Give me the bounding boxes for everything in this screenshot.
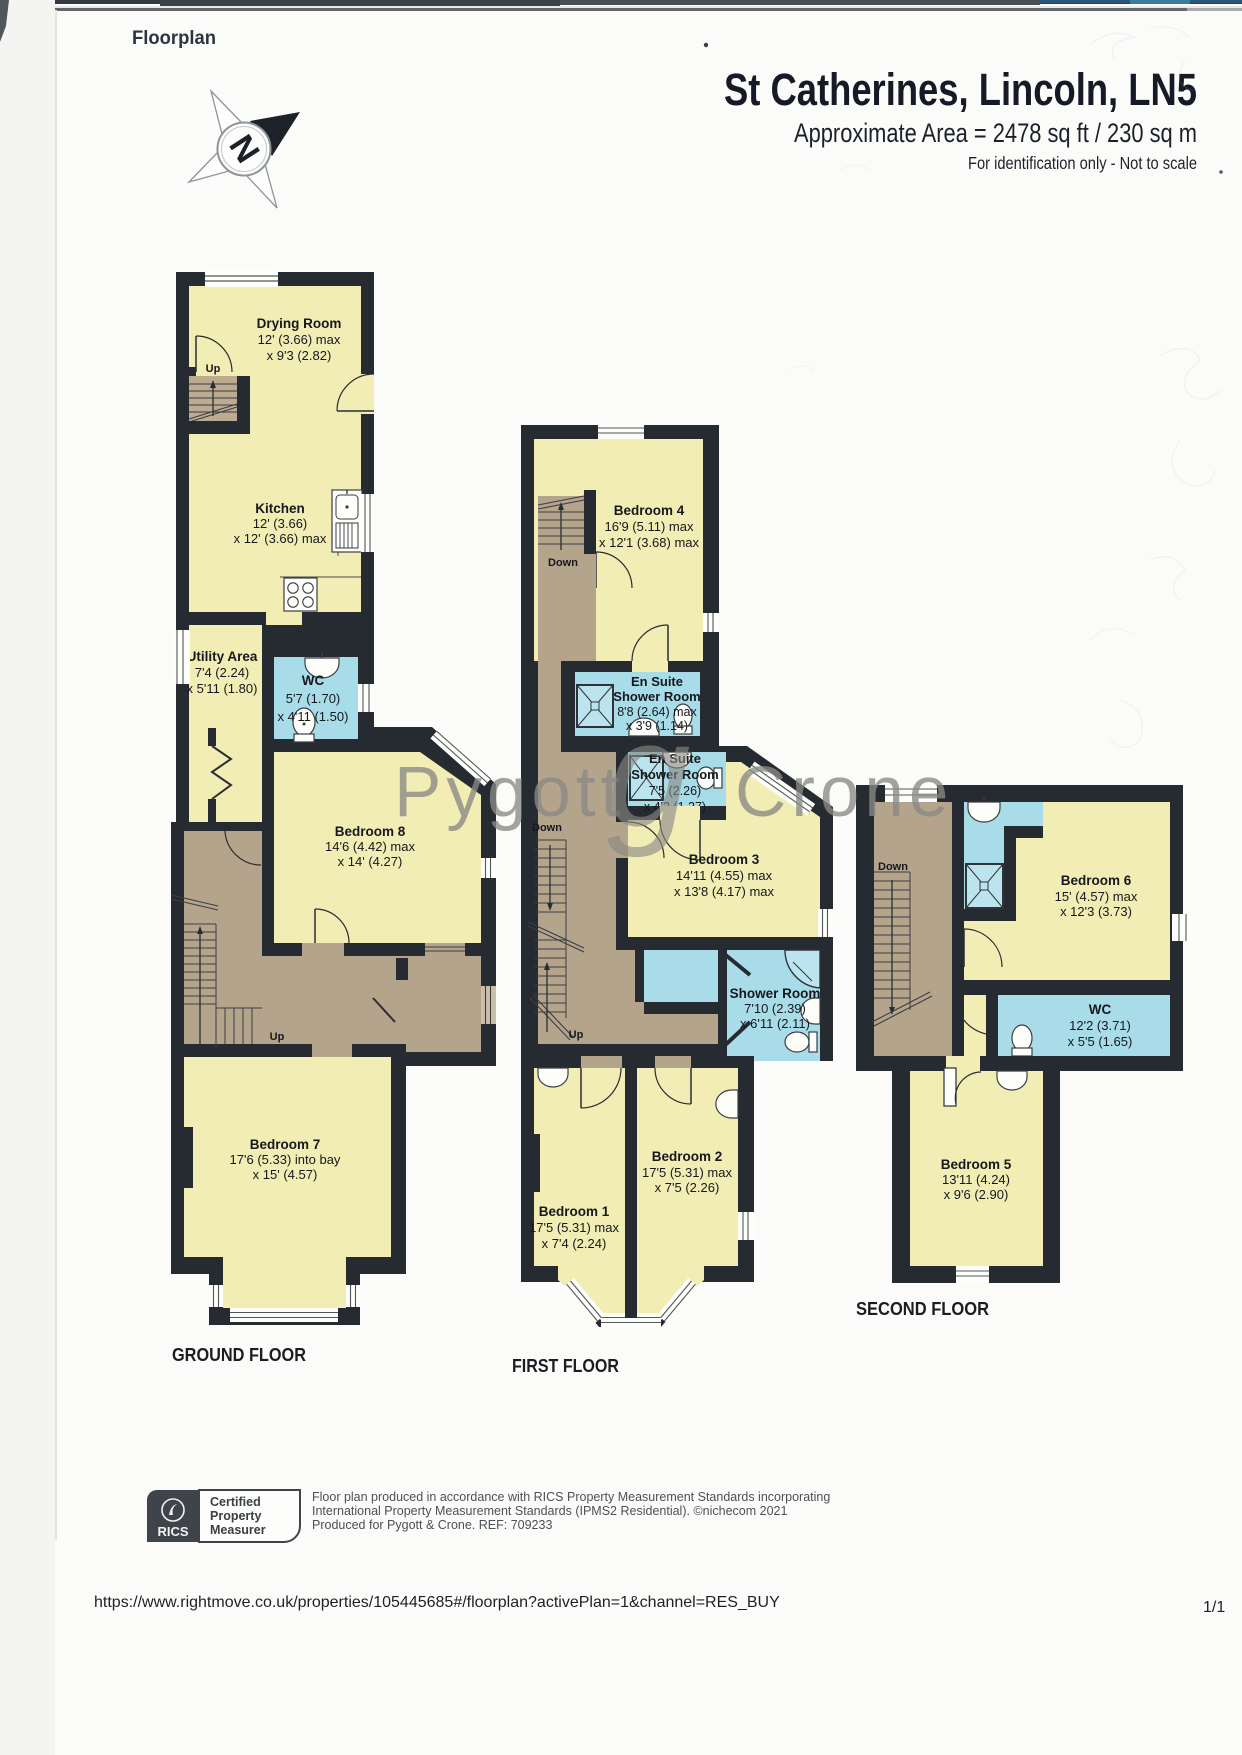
svg-text:Bedroom 6: Bedroom 6 [1061,873,1132,888]
svg-text:13'11 (4.24): 13'11 (4.24) [942,1172,1010,1187]
svg-text:Crone: Crone [735,753,953,832]
svg-text:Floor plan produced in accorda: Floor plan produced in accordance with R… [312,1490,830,1504]
svg-text:16'9 (5.11) max: 16'9 (5.11) max [605,519,694,534]
svg-text:SECOND FLOOR: SECOND FLOOR [856,1298,989,1319]
svg-text:Bedroom 1: Bedroom 1 [539,1204,610,1219]
svg-text:x 13'8 (4.17) max: x 13'8 (4.17) max [674,884,775,899]
svg-text:12'2 (3.71): 12'2 (3.71) [1069,1018,1131,1033]
svg-text:x 9'6 (2.90): x 9'6 (2.90) [944,1187,1009,1202]
svg-text:WC: WC [1089,1002,1112,1017]
svg-text:x 15' (4.57): x 15' (4.57) [253,1167,318,1182]
svg-text:FIRST FLOOR: FIRST FLOOR [512,1355,619,1376]
svg-text:Down: Down [878,861,908,873]
svg-text:Bedroom 2: Bedroom 2 [652,1149,723,1164]
svg-text:x 12'3 (3.73): x 12'3 (3.73) [1060,904,1132,919]
svg-text:x 12'1 (3.68) max: x 12'1 (3.68) max [599,535,700,550]
svg-text:St Catherines, Lincoln, LN5: St Catherines, Lincoln, LN5 [724,64,1197,115]
svg-text:x 7'4 (2.24): x 7'4 (2.24) [542,1236,607,1251]
svg-text:Bedroom 7: Bedroom 7 [250,1137,321,1152]
svg-text:17'6 (5.33) into bay: 17'6 (5.33) into bay [230,1152,341,1167]
svg-text:Bedroom 4: Bedroom 4 [614,503,685,518]
svg-text:Bedroom 3: Bedroom 3 [689,852,760,867]
svg-text:x 5'11 (1.80): x 5'11 (1.80) [187,681,258,696]
svg-text:Utility Area: Utility Area [187,649,258,664]
svg-text:7'4 (2.24): 7'4 (2.24) [195,665,250,680]
svg-text:17'5 (5.31) max: 17'5 (5.31) max [529,1220,619,1235]
svg-text:14'6 (4.42) max: 14'6 (4.42) max [325,839,415,854]
svg-text:Approximate Area = 2478 sq ft: Approximate Area = 2478 sq ft / 230 sq m [794,118,1197,148]
svg-text:GROUND FLOOR: GROUND FLOOR [172,1344,306,1365]
svg-text:Certified: Certified [210,1495,261,1509]
svg-text:RICS: RICS [157,1524,188,1539]
svg-text:Up: Up [270,1031,285,1043]
svg-text:x 9'3 (2.82): x 9'3 (2.82) [267,348,332,363]
svg-text:Shower Room: Shower Room [730,986,821,1001]
svg-text:12' (3.66): 12' (3.66) [253,516,308,531]
svg-text:x 7'5 (2.26): x 7'5 (2.26) [655,1180,720,1195]
svg-text:Floorplan: Floorplan [132,28,216,49]
svg-text:En Suite: En Suite [631,674,683,689]
svg-text:17'5 (5.31) max: 17'5 (5.31) max [642,1165,732,1180]
svg-text:x 6'11 (2.11): x 6'11 (2.11) [740,1016,810,1031]
svg-text:Drying Room: Drying Room [257,316,342,331]
svg-text:Kitchen: Kitchen [255,501,305,516]
svg-text:5'7 (1.70): 5'7 (1.70) [286,691,341,706]
svg-text:Up: Up [569,1029,584,1041]
svg-text:x 12' (3.66) max: x 12' (3.66) max [234,531,327,546]
svg-text:15' (4.57) max: 15' (4.57) max [1055,889,1138,904]
svg-text:x 14' (4.27): x 14' (4.27) [338,854,403,869]
svg-text:Produced for Pygott & Crone.: Produced for Pygott & Crone. REF: 709233 [312,1518,552,1532]
svg-text:Property: Property [210,1509,261,1523]
svg-text:12' (3.66) max: 12' (3.66) max [258,332,341,347]
svg-text:https://www.rightmove.co.uk/pr: https://www.rightmove.co.uk/properties/1… [94,1594,780,1611]
svg-text:Up: Up [206,363,221,375]
svg-text:7'10 (2.39): 7'10 (2.39) [744,1001,806,1016]
svg-text:g: g [607,690,690,858]
svg-text:1/1: 1/1 [1203,1599,1225,1616]
svg-text:x 4'11 (1.50): x 4'11 (1.50) [278,709,349,724]
svg-text:International Property Measure: International Property Measurement Stand… [312,1504,787,1518]
svg-text:For identification only - Not: For identification only - Not to scale [968,153,1197,173]
svg-text:WC: WC [302,673,325,688]
svg-text:Down: Down [548,557,578,569]
svg-text:Pygott: Pygott [394,753,625,832]
svg-text:14'11 (4.55) max: 14'11 (4.55) max [676,868,773,883]
svg-text:x 5'5 (1.65): x 5'5 (1.65) [1068,1034,1133,1049]
svg-text:Measurer: Measurer [210,1523,266,1537]
svg-text:Bedroom 5: Bedroom 5 [941,1157,1012,1172]
